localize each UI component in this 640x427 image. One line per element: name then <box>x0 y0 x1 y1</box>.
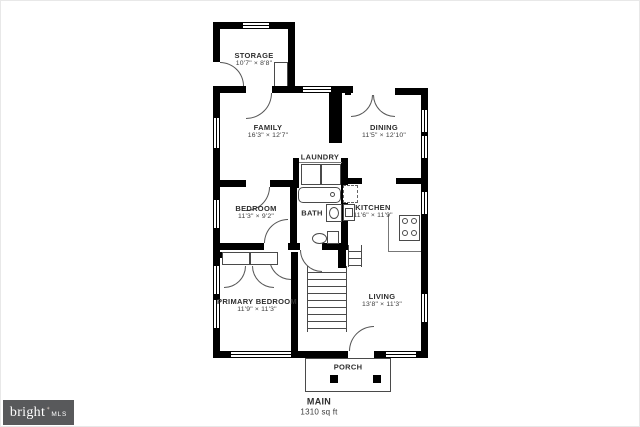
window-symbol <box>231 351 263 358</box>
wall-segment <box>213 243 264 250</box>
level-area: 1310 sq ft <box>300 408 337 418</box>
wall-segment <box>338 243 346 268</box>
toilet-tank <box>327 231 339 244</box>
washer <box>301 164 321 185</box>
wall-segment <box>213 180 246 187</box>
level-name: MAIN <box>300 396 337 407</box>
room-label-dining: DINING 11'5" × 12'10" <box>362 123 406 141</box>
stairs <box>307 266 347 332</box>
room-name: LIVING <box>362 292 402 301</box>
wall-segment <box>288 22 295 93</box>
wall-segment <box>374 351 386 358</box>
closet-door-arc <box>252 266 274 288</box>
closet <box>222 252 250 265</box>
room-name: BATH <box>301 208 322 217</box>
brand-star-icon: ✶ <box>46 406 50 412</box>
window-symbol <box>303 86 331 93</box>
front-door-arc <box>349 326 374 351</box>
room-name: DINING <box>362 123 406 132</box>
room-label-primary-bedroom: PRIMARY BEDROOM 11'9" × 11'3" <box>217 297 297 315</box>
room-label-living: LIVING 13'8" × 11'3" <box>362 292 402 310</box>
wall-segment <box>213 22 220 62</box>
closet-door-arc <box>224 266 246 288</box>
level-label: MAIN 1310 sq ft <box>300 396 337 417</box>
room-label-porch: PORCH <box>334 362 363 371</box>
stove-burner <box>411 218 417 224</box>
window-symbol <box>421 110 428 132</box>
room-label-bedroom: BEDROOM 11'3" × 9'2" <box>235 204 276 222</box>
fridge-fixture <box>343 185 358 203</box>
room-name: PRIMARY BEDROOM <box>217 297 297 306</box>
room-label-laundry: LAUNDRY <box>301 152 340 161</box>
door-arc <box>300 250 322 272</box>
room-dims: 11'5" × 12'10" <box>362 132 406 140</box>
wall-segment <box>288 243 297 250</box>
porch-post <box>373 375 381 383</box>
kitchen-sink-basin <box>345 208 353 217</box>
stove-burner <box>411 230 417 236</box>
wall-segment <box>421 214 428 294</box>
wall-segment <box>213 148 220 200</box>
wall-segment <box>345 88 351 95</box>
brand-sub-label: MLS <box>51 411 67 418</box>
wall-segment <box>348 178 362 184</box>
window-symbol <box>421 192 428 214</box>
window-symbol <box>213 200 220 228</box>
window-symbol <box>213 266 220 294</box>
wall-segment <box>421 88 428 110</box>
counter-edge <box>388 251 421 252</box>
basement-stairs <box>348 245 362 267</box>
room-dims: 11'3" × 9'2" <box>235 213 276 221</box>
window-symbol <box>243 22 269 29</box>
french-door-arc <box>373 95 395 117</box>
wall-segment <box>290 186 297 250</box>
window-symbol <box>421 294 428 322</box>
wall-segment <box>272 86 303 93</box>
room-dims: 11'9" × 11'3" <box>217 306 297 314</box>
closet <box>250 252 278 265</box>
porch-post <box>330 375 338 383</box>
brand-wordmark: bright <box>10 405 45 421</box>
room-label-bath: BATH <box>301 208 322 217</box>
wall-segment <box>396 178 428 184</box>
room-name: PORCH <box>334 362 363 371</box>
room-name: KITCHEN <box>353 203 392 212</box>
laundry-closet-line <box>299 162 342 163</box>
wall-segment <box>421 158 428 192</box>
wall-segment <box>295 351 348 358</box>
toilet-bowl <box>312 233 327 244</box>
room-label-storage: STORAGE 10'7" × 8'8" <box>234 51 273 69</box>
room-label-family: FAMILY 16'3" × 12'7" <box>248 123 288 141</box>
room-dims: 11'6" × 11'9" <box>353 212 392 220</box>
wall-segment <box>213 86 220 118</box>
door-arc <box>246 93 272 119</box>
window-symbol <box>421 136 428 158</box>
wall-segment <box>329 93 342 143</box>
wall-segment <box>213 351 231 358</box>
room-label-kitchen: KITCHEN 11'6" × 11'9" <box>353 203 392 221</box>
floor-plan: STORAGE 10'7" × 8'8" FAMILY 16'3" × 12'7… <box>0 0 640 427</box>
room-dims: 13'8" × 11'3" <box>362 301 402 309</box>
room-dims: 16'3" × 12'7" <box>248 132 288 140</box>
window-symbol <box>213 118 220 148</box>
bath-sink-fixture <box>329 207 339 219</box>
tub-drain <box>330 192 335 197</box>
room-name: FAMILY <box>248 123 288 132</box>
chimney-chase <box>274 62 288 88</box>
dryer <box>321 164 341 185</box>
wall-segment <box>213 252 222 258</box>
bright-mls-badge: bright ✶ MLS <box>3 400 74 425</box>
window-symbol <box>386 351 416 358</box>
french-door-arc <box>351 95 373 117</box>
door-arc <box>264 219 288 243</box>
wall-segment <box>416 351 428 358</box>
room-name: STORAGE <box>234 51 273 60</box>
wall-segment <box>297 243 300 250</box>
room-name: BEDROOM <box>235 204 276 213</box>
stove-burner <box>402 230 408 236</box>
room-dims: 10'7" × 8'8" <box>234 60 273 68</box>
room-name: LAUNDRY <box>301 152 340 161</box>
stove-burner <box>402 218 408 224</box>
